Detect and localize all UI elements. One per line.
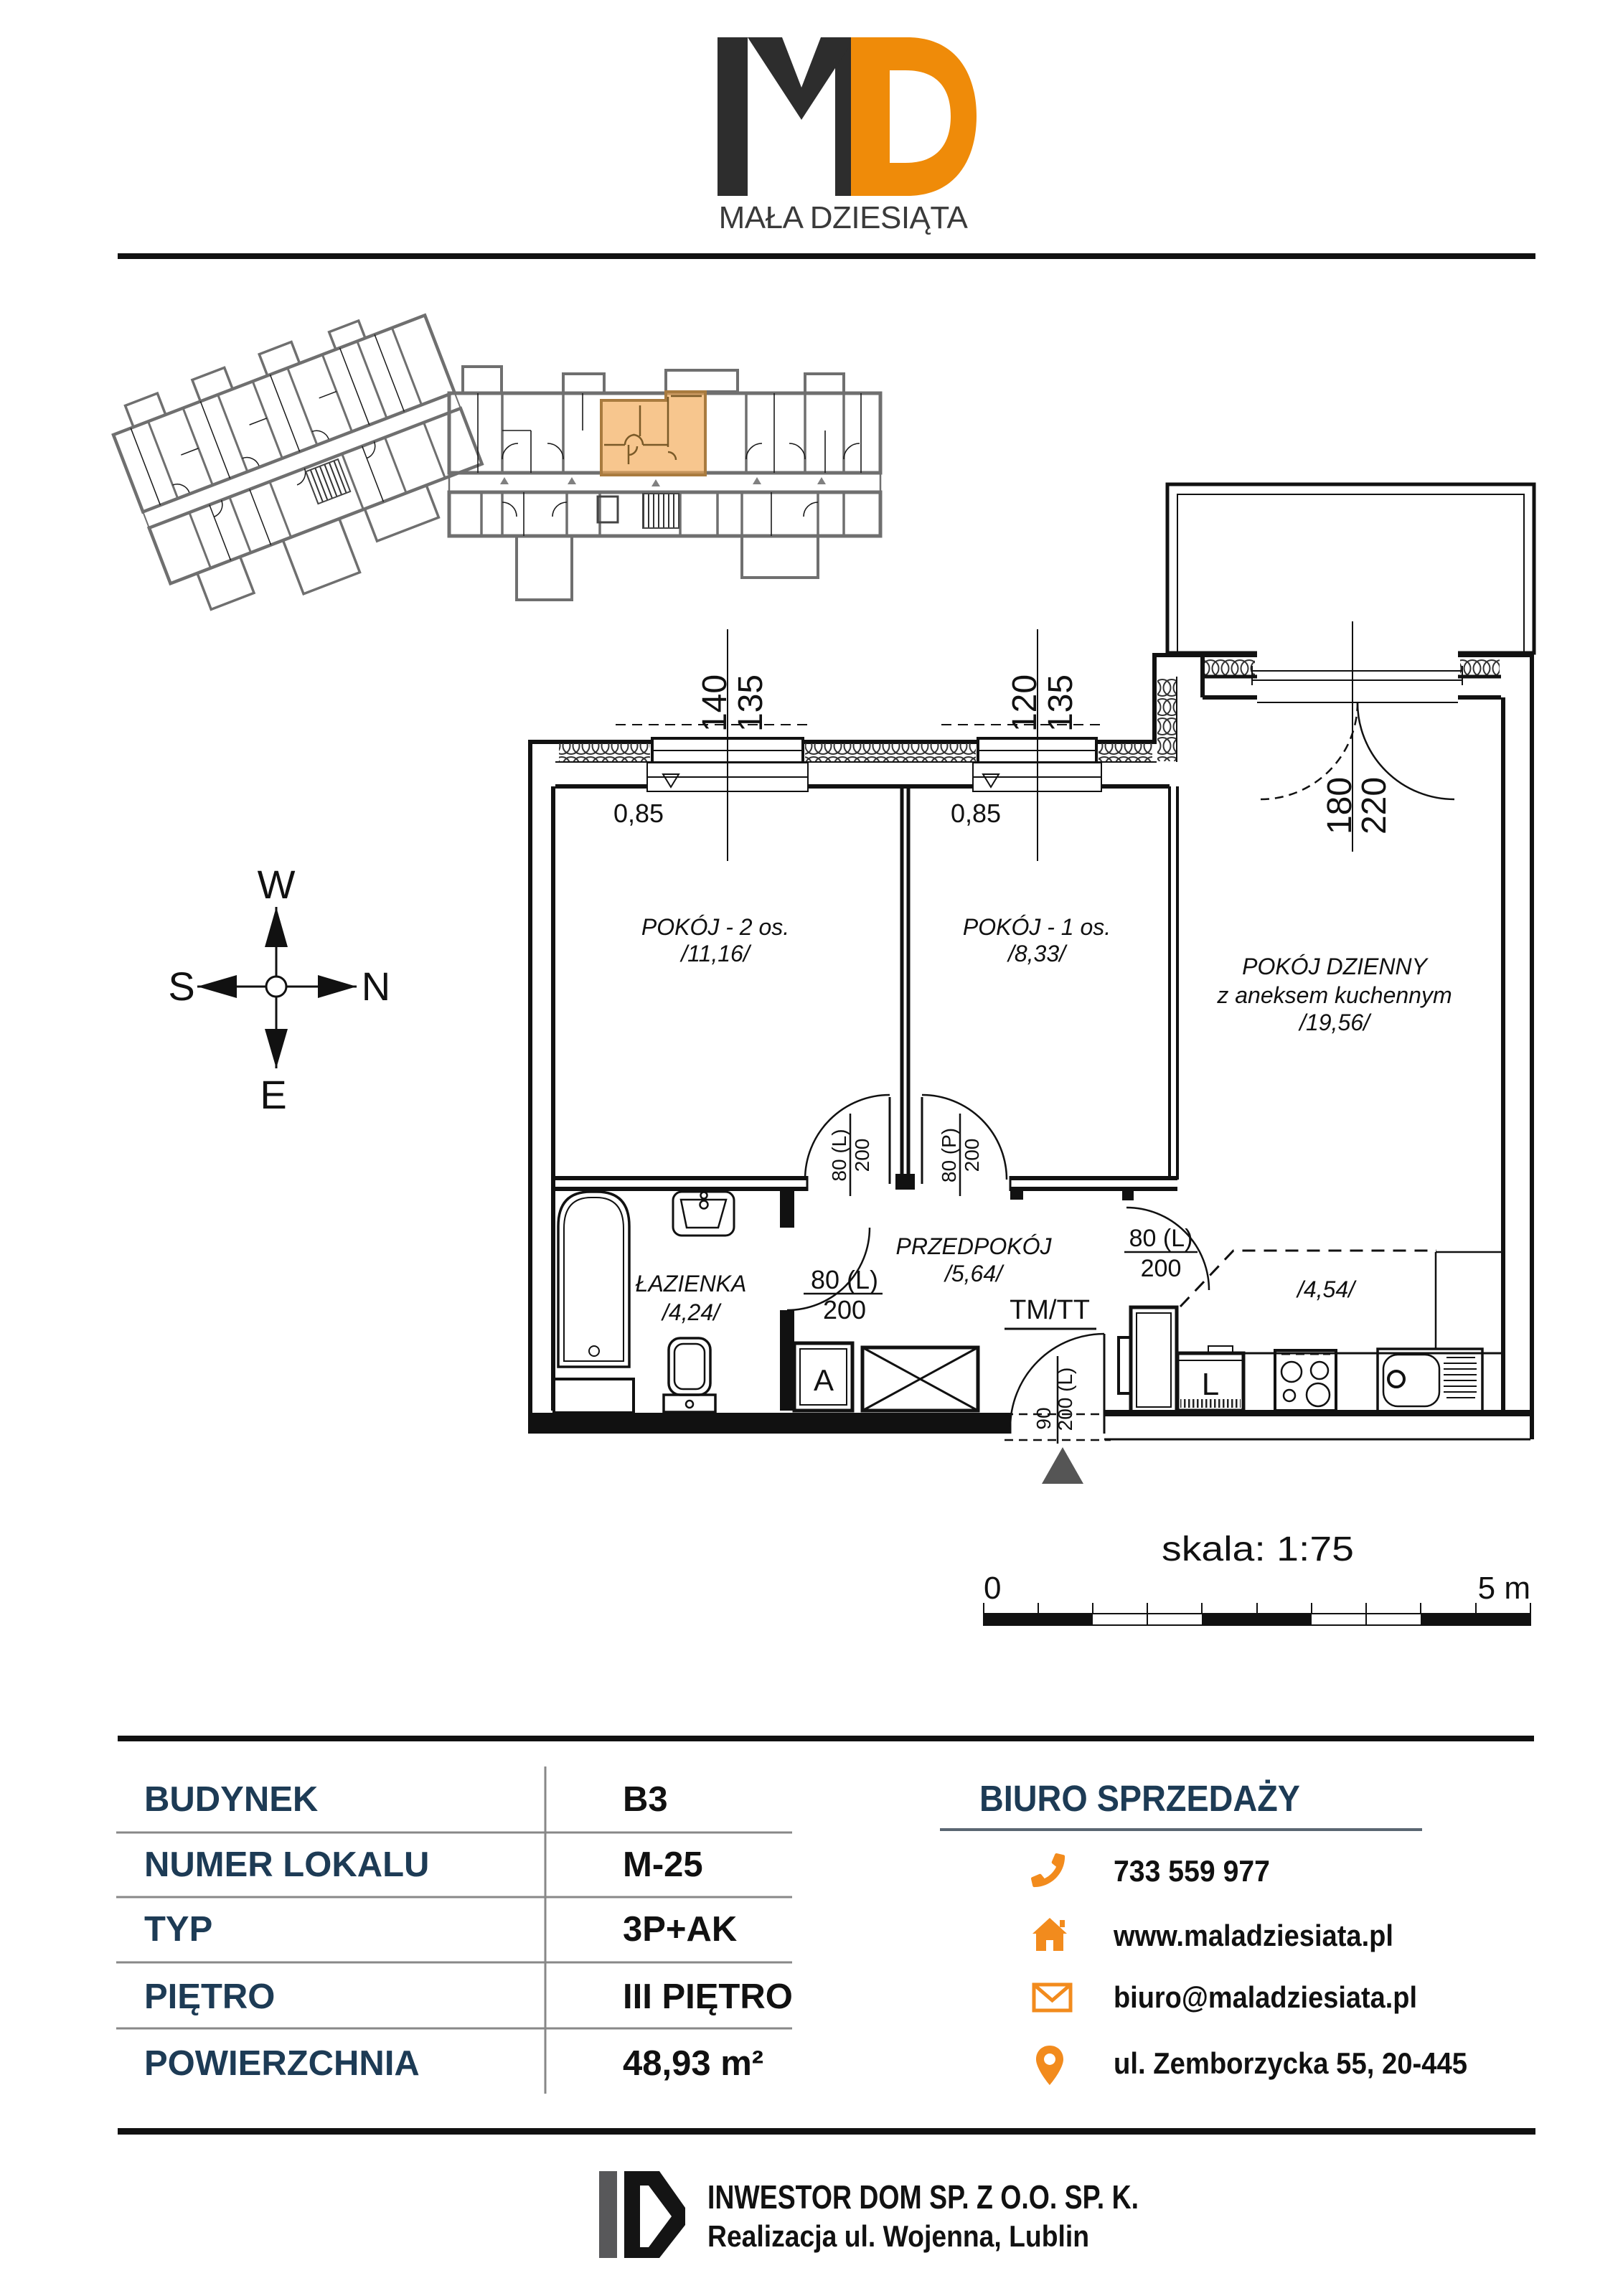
svg-text:A: A	[814, 1363, 834, 1397]
svg-text:W: W	[258, 862, 296, 907]
svg-text:N: N	[362, 964, 390, 1009]
svg-text:S: S	[168, 964, 194, 1009]
svg-text:POKÓJ - 1 os.: POKÓJ - 1 os.	[963, 914, 1111, 940]
svg-text:733 559 977: 733 559 977	[1114, 1854, 1270, 1888]
svg-text:140: 140	[696, 674, 734, 732]
svg-text:200: 200	[851, 1139, 873, 1172]
svg-text:NUMER LOKALU: NUMER LOKALU	[144, 1845, 429, 1884]
svg-text:BIURO SPRZEDAŻY: BIURO SPRZEDAŻY	[979, 1778, 1300, 1819]
svg-text:135: 135	[1042, 674, 1080, 732]
svg-text:200: 200	[961, 1139, 983, 1172]
svg-text:POWIERZCHNIA: POWIERZCHNIA	[144, 2044, 420, 2083]
svg-text:Realizacja ul. Wojenna, Lublin: Realizacja ul. Wojenna, Lublin	[707, 2219, 1089, 2253]
svg-text:/19,56/: /19,56/	[1298, 1010, 1372, 1035]
svg-text:80 (P): 80 (P)	[938, 1128, 960, 1182]
svg-text:PIĘTRO: PIĘTRO	[144, 1977, 275, 2016]
svg-text:L: L	[1202, 1367, 1219, 1402]
svg-text:/11,16/: /11,16/	[679, 941, 752, 966]
svg-text:80 (L): 80 (L)	[828, 1129, 850, 1181]
svg-text:skala: 1:75: skala: 1:75	[1162, 1530, 1354, 1568]
svg-text:/4,24/: /4,24/	[661, 1299, 722, 1325]
svg-text:200: 200	[1141, 1255, 1182, 1282]
svg-text:ŁAZIENKA: ŁAZIENKA	[636, 1271, 747, 1297]
svg-text:TM/TT: TM/TT	[1010, 1295, 1090, 1325]
svg-text:E: E	[260, 1072, 286, 1117]
svg-text:ul. Zemborzycka 55, 20-445: ul. Zemborzycka 55, 20-445	[1114, 2046, 1467, 2080]
svg-text:48,93 m²: 48,93 m²	[623, 2044, 763, 2083]
svg-text:120: 120	[1006, 674, 1044, 732]
svg-text:80 (L): 80 (L)	[1129, 1225, 1193, 1252]
svg-text:/5,64/: /5,64/	[944, 1261, 1005, 1286]
svg-text:TYP: TYP	[144, 1910, 212, 1949]
svg-text:INWESTOR DOM SP. Z O.O. SP. K.: INWESTOR DOM SP. Z O.O. SP. K.	[707, 2178, 1139, 2216]
svg-text:POKÓJ DZIENNY: POKÓJ DZIENNY	[1242, 954, 1429, 979]
svg-text:90: 90	[1032, 1407, 1055, 1429]
svg-text:z aneksem kuchennym: z aneksem kuchennym	[1216, 982, 1452, 1008]
svg-text:M-25: M-25	[623, 1845, 703, 1884]
svg-text:200: 200	[823, 1295, 866, 1325]
svg-text:PRZEDPOKÓJ: PRZEDPOKÓJ	[896, 1233, 1053, 1259]
svg-text:220: 220	[1355, 777, 1393, 834]
svg-text:80 (L): 80 (L)	[811, 1265, 878, 1294]
svg-text:biuro@maladziesiata.pl: biuro@maladziesiata.pl	[1114, 1980, 1417, 2014]
svg-text:POKÓJ - 2 os.: POKÓJ - 2 os.	[641, 914, 789, 940]
svg-text:B3: B3	[623, 1780, 668, 1819]
svg-text:0,85: 0,85	[613, 799, 664, 828]
svg-text:3P+AK: 3P+AK	[623, 1910, 737, 1949]
svg-text:www.maladziesiata.pl: www.maladziesiata.pl	[1113, 1919, 1393, 1952]
svg-text:0,85: 0,85	[951, 799, 1001, 828]
svg-text:200 (L): 200 (L)	[1054, 1368, 1076, 1431]
svg-text:0: 0	[984, 1571, 1001, 1606]
svg-text:/8,33/: /8,33/	[1007, 941, 1068, 966]
svg-text:BUDYNEK: BUDYNEK	[144, 1780, 318, 1819]
svg-text:135: 135	[732, 674, 770, 732]
svg-text:MAŁA DZIESIĄTA: MAŁA DZIESIĄTA	[719, 200, 969, 235]
svg-text:III PIĘTRO: III PIĘTRO	[623, 1977, 793, 2016]
svg-text:5 m: 5 m	[1478, 1571, 1530, 1606]
svg-text:/4,54/: /4,54/	[1296, 1276, 1357, 1302]
svg-text:180: 180	[1321, 777, 1359, 834]
